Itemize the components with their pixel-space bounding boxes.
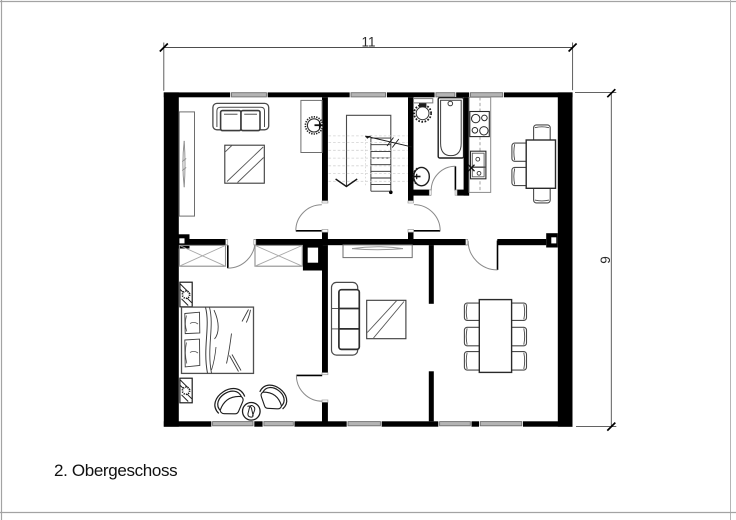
svg-text:2. Obergeschoss: 2. Obergeschoss	[54, 461, 177, 480]
svg-text:11: 11	[361, 35, 375, 50]
svg-text:9: 9	[598, 256, 613, 264]
